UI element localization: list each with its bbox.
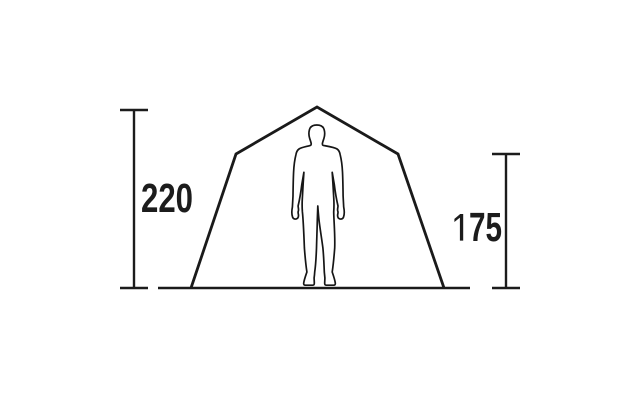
svg-text:75: 75 (469, 204, 502, 250)
svg-text:220: 220 (141, 175, 193, 221)
